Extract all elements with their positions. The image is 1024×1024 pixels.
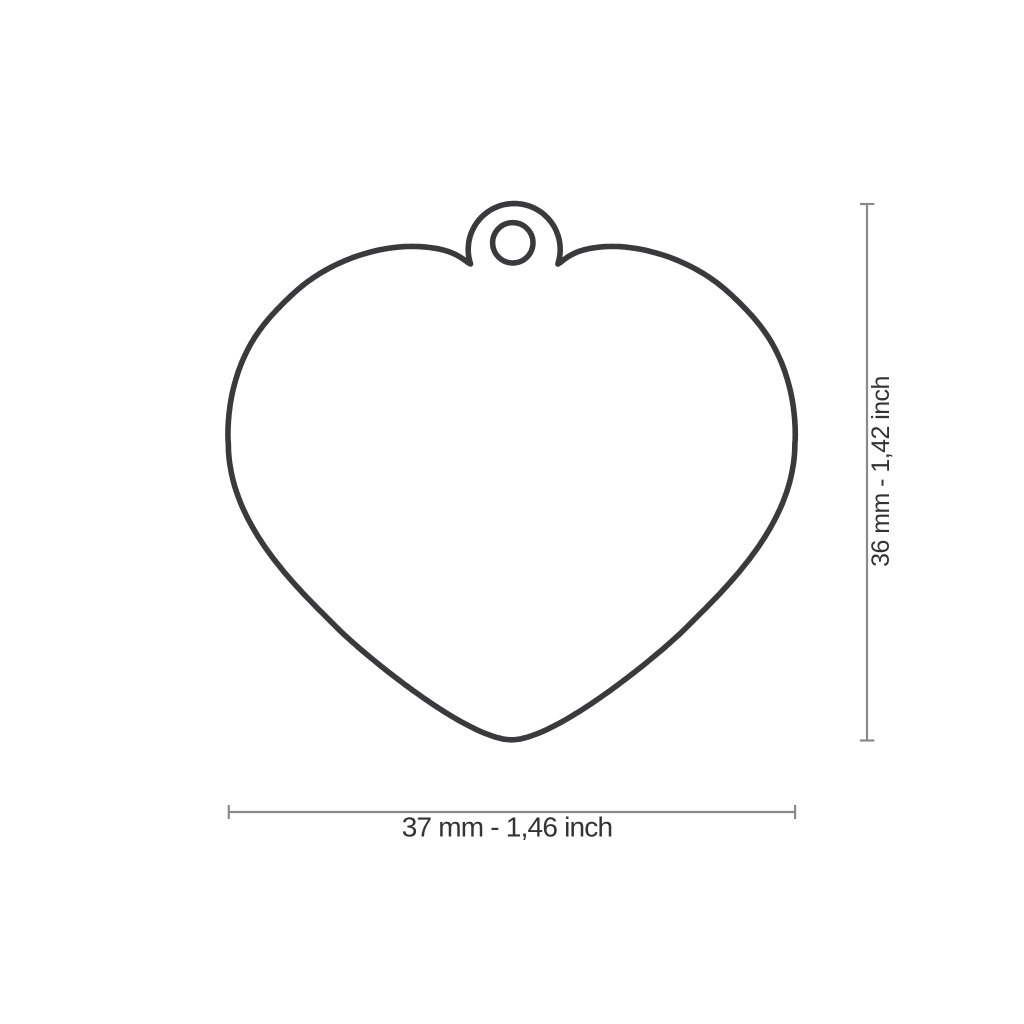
svg-text:36 mm - 1,42 inch: 36 mm - 1,42 inch — [867, 376, 895, 567]
svg-text:37 mm - 1,46 inch: 37 mm - 1,46 inch — [402, 812, 613, 843]
